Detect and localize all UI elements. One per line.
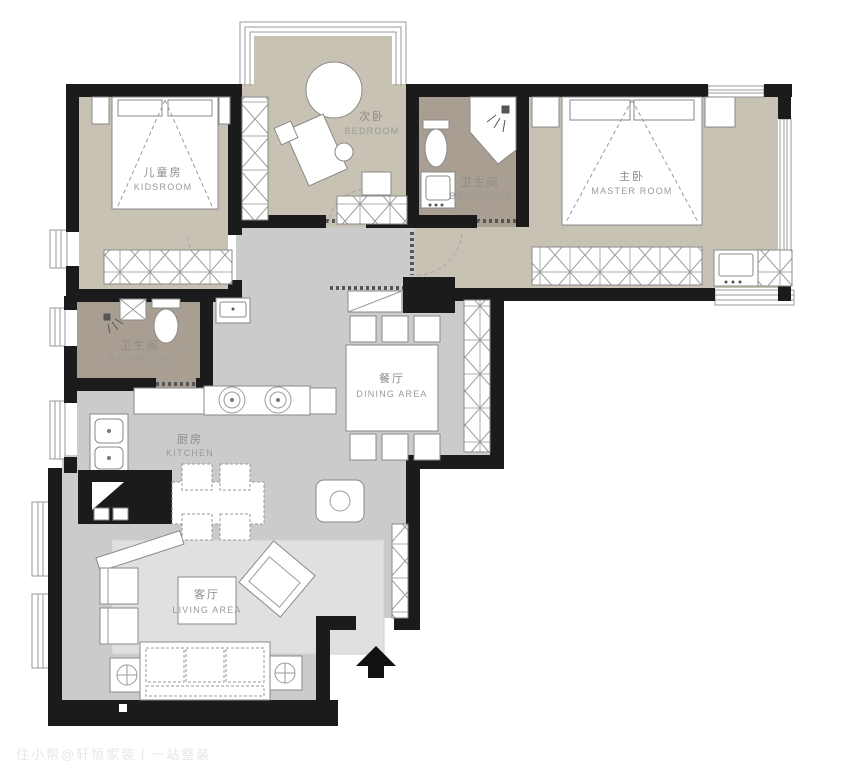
dining-label-zh: 餐厅 (379, 371, 405, 385)
bedroom-dresser (337, 196, 407, 224)
kidsroom-label-en: KIDSROOM (134, 182, 193, 192)
kids-nightstand (92, 97, 109, 124)
bathroom2-label-zh: 卫生间 (121, 338, 160, 352)
dining-chair (414, 434, 440, 460)
dining-chair (382, 316, 408, 342)
toilet-icon (423, 120, 449, 129)
kitchen-chair (182, 514, 212, 540)
bedroom-round-chair (306, 62, 362, 118)
master-nightstand-right (705, 97, 735, 127)
armchair (100, 608, 138, 644)
dining-chair (414, 316, 440, 342)
dining-cabinet (464, 300, 490, 452)
bay-window-living-1 (32, 502, 49, 576)
kitchen-label-en: KITCHEN (166, 448, 214, 458)
bedroom-table (362, 172, 391, 195)
kids-wardrobe (104, 250, 232, 284)
stove-icon (204, 386, 310, 415)
master-nightstand-left (532, 97, 559, 127)
bedroom-side-stool (335, 143, 353, 161)
master-wardrobe (532, 247, 702, 285)
bedroom-label-zh: 次卧 (359, 109, 385, 123)
hall-pedestal (316, 480, 364, 522)
kitchen-label-zh: 厨房 (177, 433, 203, 446)
armchair (100, 568, 138, 604)
watermark: 住小帮@轩恒家装丨一站整装 (16, 744, 211, 763)
dining-table (346, 345, 438, 431)
kitchen-chair (220, 464, 250, 490)
floorplan-canvas: { "plan": { "type": "apartment-floorplan… (0, 0, 868, 781)
window-master-top (708, 86, 764, 97)
living-label-en: LIVING AREA (172, 605, 241, 615)
dining-label-en: DINING AREA (356, 389, 427, 399)
bedroom-wardrobe (242, 97, 268, 220)
master-label-en: MASTER ROOM (591, 186, 672, 196)
kitchen-chair (182, 464, 212, 490)
window-master-right (780, 119, 791, 265)
bathroom1-label-en: BATHROOM (450, 191, 511, 201)
dining-chair (382, 434, 408, 460)
kitchen-chair (220, 514, 250, 540)
window-bathroom2-left (50, 308, 65, 346)
bathroom1-label-zh: 卫生间 (461, 175, 500, 189)
master-cabinet (758, 250, 792, 286)
toilet2-icon (152, 299, 180, 308)
floorplan-svg: 儿童房 KIDSROOM 次卧 BEDROOM (0, 0, 868, 781)
bathroom2-label-en: BATHROOM (110, 354, 171, 364)
window-kitchen-left (50, 401, 65, 459)
bedroom-label-en: BEDROOM (345, 126, 400, 136)
living-label-zh: 客厅 (194, 587, 220, 601)
bay-window-living-2 (32, 594, 49, 668)
living-rug (112, 540, 384, 654)
kidsroom-label-zh: 儿童房 (144, 165, 183, 179)
dining-chair (350, 434, 376, 460)
window-kidsroom-left (50, 230, 67, 268)
shoe-cabinet (392, 524, 408, 618)
dining-chair (350, 316, 376, 342)
master-label-zh: 主卧 (619, 170, 645, 183)
